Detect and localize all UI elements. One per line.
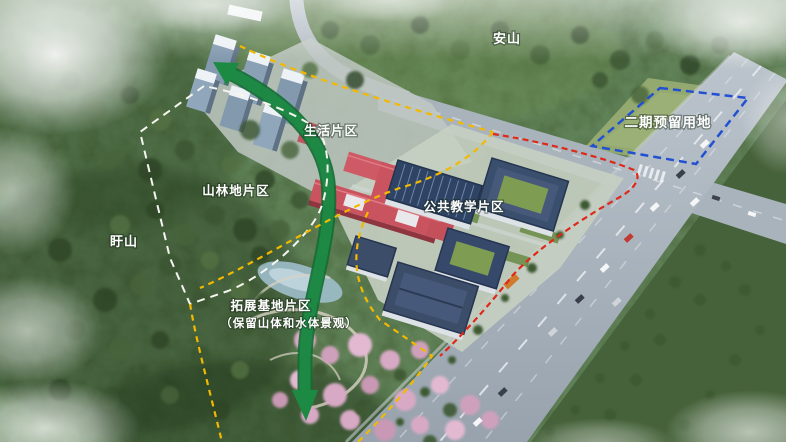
masterplan-aerial-view: 安山 二期预留用地 生活片区 山林地片区 公共教学片区 盱山 拓展基地片区 （保… bbox=[0, 0, 786, 442]
label-expansion: 拓展基地片区 bbox=[230, 298, 311, 313]
masterplan-canvas: 安山 二期预留用地 生活片区 山林地片区 公共教学片区 盱山 拓展基地片区 （保… bbox=[0, 0, 786, 442]
label-xushan: 盱山 bbox=[110, 234, 138, 249]
label-phase2: 二期预留用地 bbox=[625, 114, 712, 130]
label-forest: 山林地片区 bbox=[202, 183, 270, 198]
label-teaching: 公共教学片区 bbox=[423, 199, 504, 214]
label-expansion-note: （保留山体和水体景观） bbox=[220, 316, 358, 330]
label-anshan: 安山 bbox=[493, 31, 521, 46]
label-living: 生活片区 bbox=[304, 123, 358, 138]
